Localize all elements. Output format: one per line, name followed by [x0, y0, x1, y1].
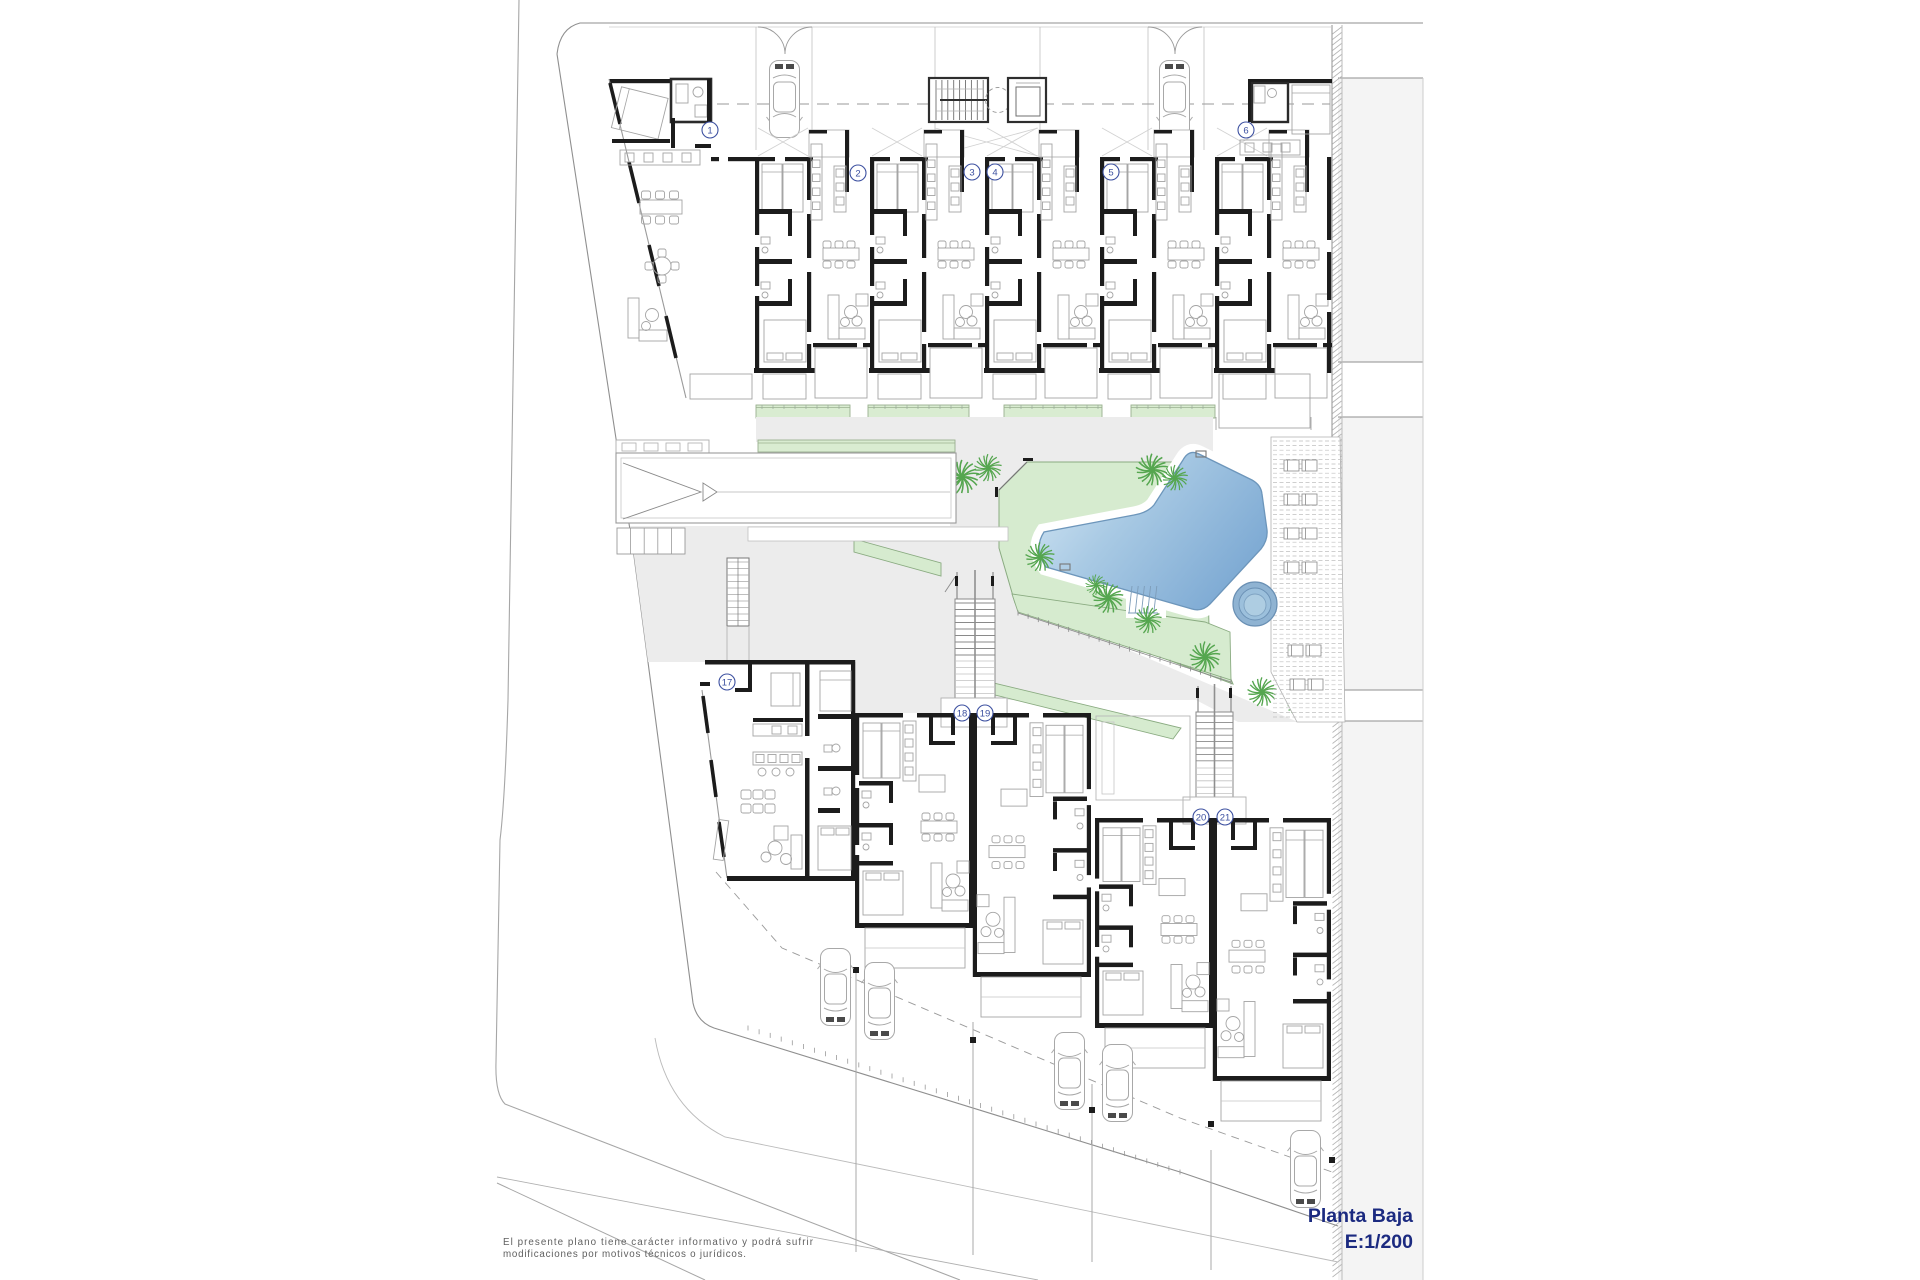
- svg-text:E:1/200: E:1/200: [1345, 1231, 1413, 1253]
- svg-text:17: 17: [722, 677, 733, 688]
- svg-text:2: 2: [855, 168, 860, 179]
- svg-text:18: 18: [957, 708, 968, 719]
- svg-text:Planta Baja: Planta Baja: [1308, 1205, 1413, 1227]
- svg-text:El presente plano tiene caráct: El presente plano tiene carácter informa…: [503, 1237, 814, 1248]
- svg-text:21: 21: [1220, 812, 1231, 823]
- svg-text:1: 1: [707, 125, 712, 136]
- svg-text:5: 5: [1108, 167, 1113, 178]
- svg-text:modificaciones por motivos téc: modificaciones por motivos técnicos o ju…: [503, 1249, 746, 1260]
- svg-text:4: 4: [992, 167, 997, 178]
- svg-text:19: 19: [980, 708, 991, 719]
- svg-text:20: 20: [1196, 812, 1207, 823]
- svg-text:3: 3: [969, 167, 974, 178]
- svg-text:6: 6: [1243, 125, 1248, 136]
